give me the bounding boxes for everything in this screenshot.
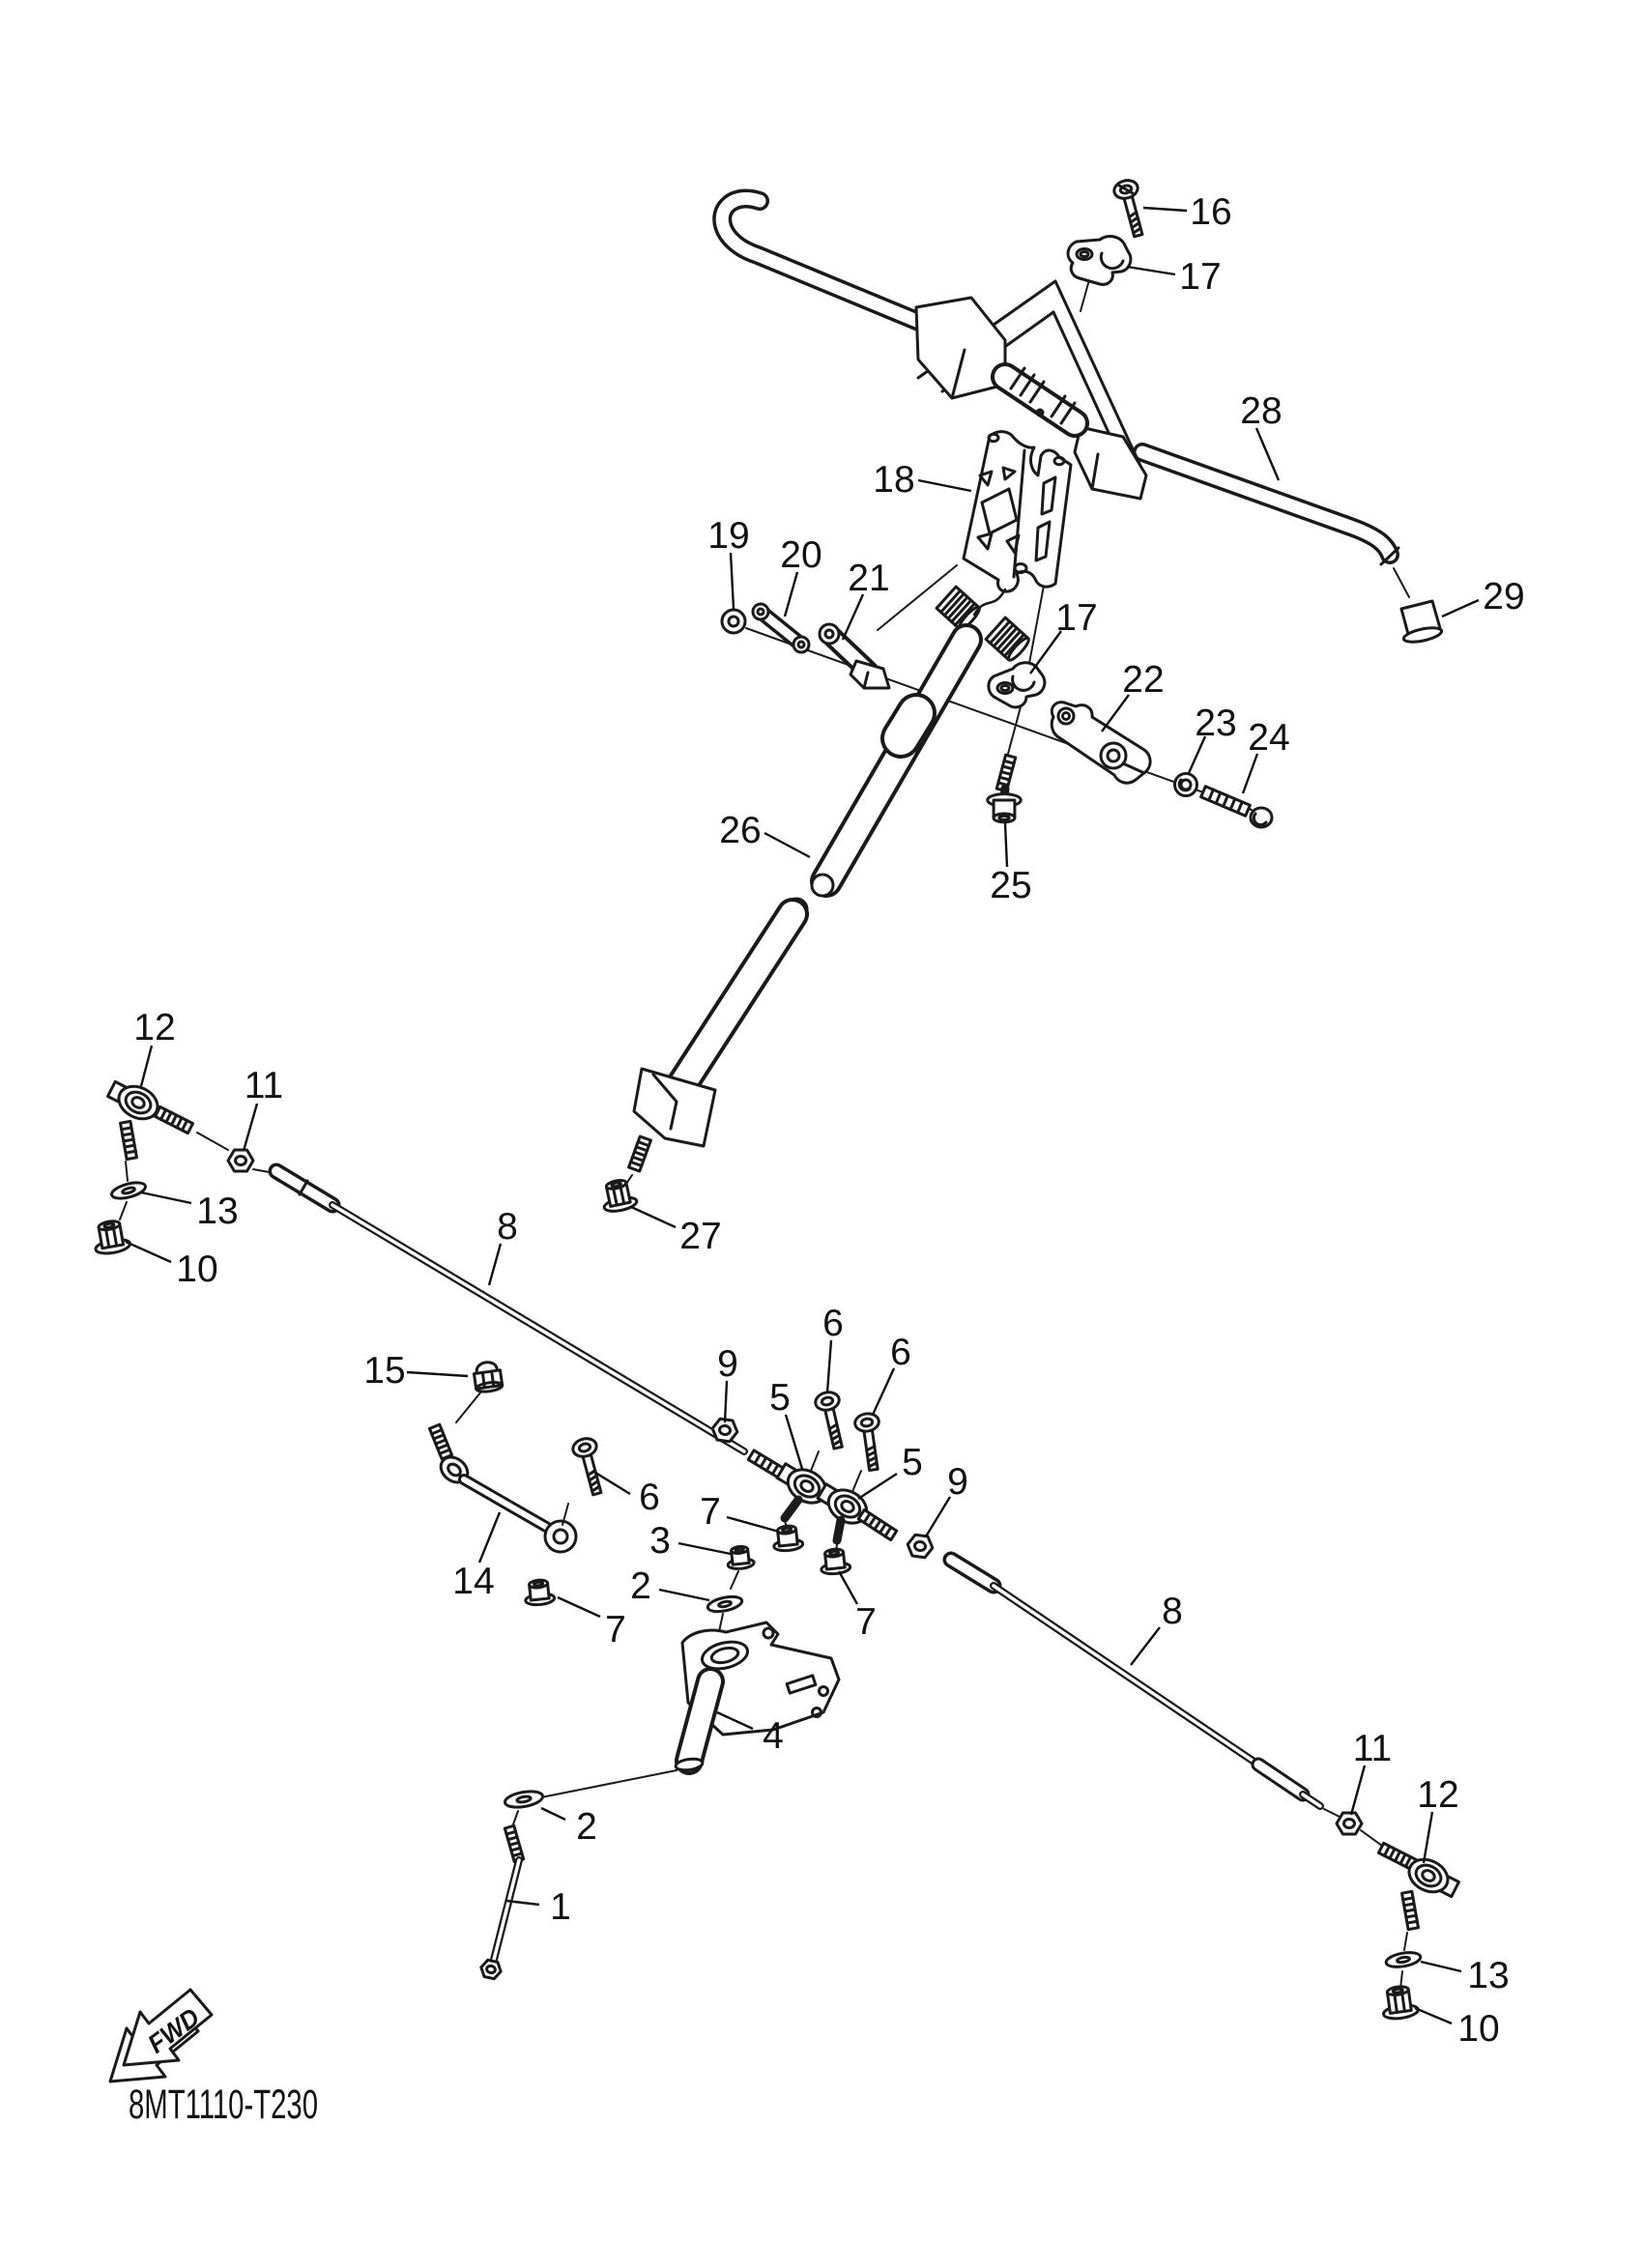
part-6-bolt-b <box>851 1412 885 1494</box>
part-number-label: 27 <box>679 1216 721 1257</box>
part-number-label: 18 <box>873 459 914 501</box>
part-6-bolt-c <box>562 1436 609 1525</box>
leader-line <box>141 1192 191 1203</box>
leader-line <box>725 1381 727 1422</box>
leader-line <box>926 1497 950 1536</box>
leader-line <box>1424 1812 1432 1863</box>
part-number-label: 6 <box>822 1303 844 1344</box>
part-20-link <box>753 604 809 652</box>
part-number-label: 13 <box>196 1191 238 1232</box>
part-number-label: 9 <box>947 1461 968 1503</box>
part-9-nut-right-inner <box>907 1534 935 1558</box>
diagram-page: FWD 8MT1110-T230 16172829181920211722232… <box>0 0 1643 2268</box>
part-number-label: 15 <box>363 1350 405 1392</box>
part-number-label: 22 <box>1122 659 1164 701</box>
parts-diagram-svg: FWD 8MT1110-T230 16172829181920211722232… <box>0 0 1643 2268</box>
part-number-label: 5 <box>902 1442 923 1483</box>
part-13-washer-right <box>1385 1950 1422 1989</box>
part-7-nut-c <box>820 1548 850 1575</box>
part-number-label: 26 <box>719 810 761 851</box>
part-15-cap-nut <box>456 1361 503 1422</box>
callouts-layer: 1617282918192021172223242526271211131081… <box>126 191 1525 2050</box>
part-number-label: 10 <box>1457 2008 1499 2050</box>
leader-line <box>1351 1766 1365 1815</box>
part-number-label: 28 <box>1240 390 1282 432</box>
part-number-label: 13 <box>1467 1955 1509 1996</box>
leader-line <box>785 572 797 617</box>
leader-line <box>1127 267 1175 274</box>
leader-line <box>1421 1962 1461 1971</box>
leader-line <box>1415 2008 1452 2024</box>
leader-line <box>126 1242 171 1262</box>
part-7-nut-a <box>772 1525 803 1552</box>
part-number-label: 12 <box>133 1007 175 1048</box>
part-number-label: 20 <box>780 534 821 576</box>
part-number-label: 19 <box>707 515 749 557</box>
part-number-label: 5 <box>769 1377 791 1419</box>
part-23-washer <box>1175 774 1197 796</box>
leader-line <box>678 1543 731 1554</box>
part-number-label: 4 <box>763 1715 784 1757</box>
part-number-label: 7 <box>605 1609 626 1651</box>
leader-line <box>764 833 810 857</box>
leader-line <box>489 1244 501 1285</box>
part-number-label: 3 <box>649 1520 671 1562</box>
part-26-steering-column <box>624 640 966 1187</box>
leader-line <box>858 1474 897 1499</box>
part-29-end-cap <box>1394 568 1443 645</box>
part-number-label: 24 <box>1248 717 1289 759</box>
part-number-label: 14 <box>452 1561 494 1602</box>
leader-line <box>141 1046 152 1086</box>
part-number-label: 17 <box>1055 597 1097 639</box>
leader-line <box>731 553 734 609</box>
part-11-nut-left <box>228 1150 253 1171</box>
part-7-nut-b <box>524 1579 555 1606</box>
part-handlebar-spline <box>1005 368 1075 423</box>
part-6-bolt-a <box>811 1390 850 1471</box>
leader-line <box>1243 754 1257 793</box>
leader-line <box>244 1104 257 1151</box>
part-number-label: 7 <box>855 1601 877 1643</box>
leader-line <box>1005 823 1007 867</box>
part-2-washer-lower <box>504 1789 544 1824</box>
leader-line <box>659 1590 709 1600</box>
leader-line <box>1143 208 1187 211</box>
leader-line <box>631 1207 676 1227</box>
part-4-steering-stem-bracket <box>541 1622 839 1797</box>
part-12-tie-rod-end-left <box>104 1076 192 1160</box>
leader-line <box>541 1808 565 1820</box>
part-25-bolt <box>988 755 1022 821</box>
part-number-label: 1 <box>550 1886 571 1928</box>
part-number-label: 6 <box>639 1477 660 1518</box>
part-number-label: 8 <box>1162 1591 1183 1632</box>
leader-line <box>843 594 863 640</box>
part-number-label: 25 <box>990 865 1031 906</box>
leader-line <box>558 1597 600 1617</box>
part-number-label: 21 <box>848 558 889 599</box>
part-number-label: 16 <box>1190 191 1231 233</box>
leader-line <box>1131 1627 1160 1665</box>
part-10-nut-right <box>1380 1985 1419 2021</box>
leader-line <box>786 1415 802 1469</box>
part-5-ball-joint-right <box>814 1479 896 1552</box>
part-10-nut-left <box>91 1219 130 1255</box>
part-8-tie-rod-right <box>951 1560 1320 1806</box>
part-number-label: 10 <box>176 1249 217 1290</box>
part-12-tie-rod-end-right <box>1379 1843 1462 1950</box>
leader-line <box>1442 600 1479 617</box>
part-19-nut <box>722 610 745 633</box>
part-number-label: 8 <box>497 1206 518 1248</box>
part-24-screw <box>1201 787 1272 827</box>
leader-line <box>479 1512 500 1563</box>
leader-line <box>827 1340 831 1392</box>
part-18-pad-plate <box>964 432 1071 591</box>
leader-line <box>873 1368 894 1415</box>
leader-line <box>1256 428 1279 480</box>
part-number-label: 7 <box>700 1491 721 1533</box>
leader-line <box>918 480 971 491</box>
part-number-label: 11 <box>245 1065 284 1106</box>
part-number-label: 17 <box>1179 256 1221 298</box>
part-number-label: 2 <box>630 1565 651 1607</box>
part-number-label: 6 <box>890 1332 911 1373</box>
leader-line <box>839 1571 857 1604</box>
part-number-label: 12 <box>1417 1774 1458 1816</box>
part-number-label: 11 <box>1353 1728 1393 1769</box>
part-number-label: 23 <box>1195 703 1236 744</box>
part-number-label: 29 <box>1483 576 1524 617</box>
part-3-nut <box>726 1545 754 1589</box>
part-11-nut-right <box>1324 1809 1382 1846</box>
diagram-code: 8MT1110-T230 <box>129 2081 318 2128</box>
part-22-arm <box>1052 703 1150 783</box>
part-17-clamp-upper <box>1068 237 1131 285</box>
part-21-lever <box>820 624 889 688</box>
part-number-label: 2 <box>576 1806 597 1848</box>
leader-line <box>727 1517 779 1532</box>
leader-line <box>407 1372 468 1376</box>
part-17-clamp-lower <box>989 663 1045 707</box>
part-number-label: 9 <box>717 1343 738 1385</box>
part-13-washer-left <box>110 1180 147 1201</box>
part-14-relay-rod <box>429 1424 576 1552</box>
